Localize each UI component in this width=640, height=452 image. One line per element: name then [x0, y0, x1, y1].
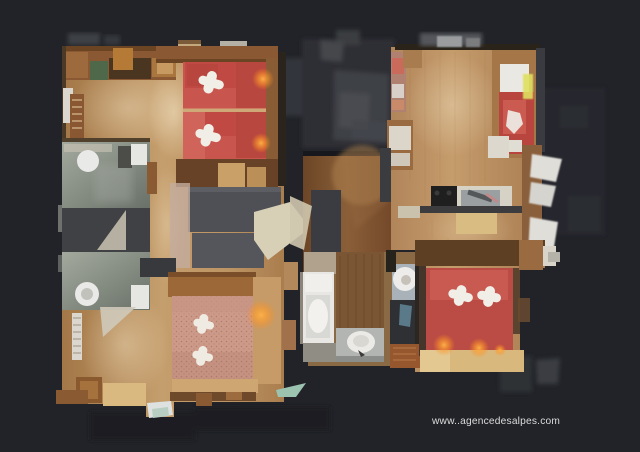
svg-text:www..agencedesalpes.com: www..agencedesalpes.com [431, 416, 560, 427]
